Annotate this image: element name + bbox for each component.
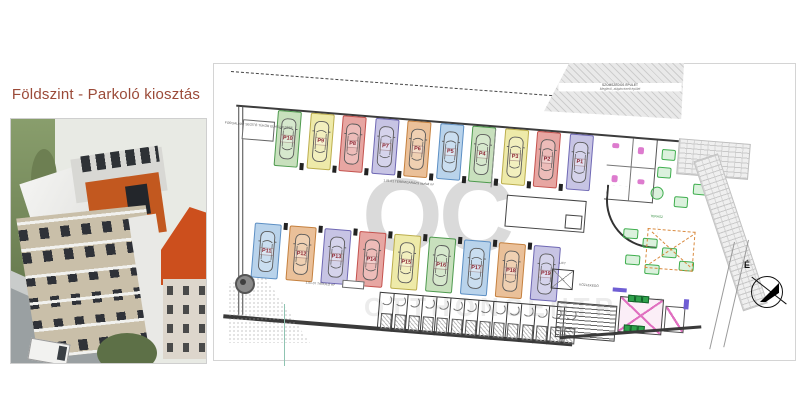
- parking-row-top: P10P9P8P7P6P5P4P3P2P1: [274, 110, 607, 192]
- page-title: Földszint - Parkoló kiosztás: [0, 86, 212, 103]
- stall-label: P7: [379, 142, 391, 151]
- floor-plan-sheet: OC OTTHONCENTRUM SZOMSZÉDOS ÉPÜLETMeglév…: [213, 63, 796, 361]
- pillar: [318, 226, 323, 233]
- pillar: [332, 166, 337, 173]
- parking-stall-p13: P13: [320, 228, 351, 285]
- parking-stall-p8: P8: [338, 115, 366, 173]
- parking-stall-p6: P6: [403, 120, 431, 178]
- pillar: [559, 184, 564, 191]
- pillar: [494, 179, 499, 186]
- pillar: [388, 231, 393, 238]
- pillar: [526, 181, 531, 188]
- stall-label: P1: [573, 158, 585, 167]
- pergola-dashed-outline: [645, 228, 696, 272]
- elevator-shaft: [551, 268, 575, 290]
- stall-label: P3: [509, 153, 521, 162]
- garden-table-icon: [661, 149, 676, 161]
- parking-stall-p17: P17: [460, 239, 491, 296]
- stall-label: P18: [503, 266, 518, 275]
- stall-label: P12: [294, 249, 309, 258]
- door-marker: [683, 299, 689, 309]
- aisle-island: [504, 195, 586, 233]
- parking-stall-p16: P16: [425, 237, 456, 294]
- building-render-image: [10, 118, 207, 364]
- stall-label: P2: [541, 155, 553, 164]
- stall-label: P5: [444, 148, 456, 157]
- parking-stall-p10: P10: [274, 110, 302, 168]
- traffic-mirror-note: FORGALMAT SEGÍTŐ TÜKÖR ELHELYEZÉSE: [242, 119, 276, 142]
- property-boundary-dashed-line: [231, 71, 552, 96]
- garden-table-icon: [674, 196, 689, 208]
- parking-stall-p11: P11: [251, 222, 282, 279]
- parking-stall-p3: P3: [500, 128, 528, 186]
- stall-label: P14: [363, 255, 378, 264]
- pillar: [300, 163, 305, 170]
- stall-label: P17: [468, 263, 483, 272]
- north-label: É: [744, 260, 750, 270]
- pillar: [283, 223, 288, 230]
- pillar: [429, 173, 434, 180]
- parking-stall-p5: P5: [436, 123, 464, 181]
- toilet-icon: [611, 175, 618, 182]
- garden-bench-icon: [625, 254, 641, 265]
- parking-stall-p12: P12: [285, 225, 316, 282]
- parking-stall-p1: P1: [565, 133, 593, 191]
- pillar: [458, 237, 463, 244]
- tree-symbol: [235, 274, 255, 294]
- neighbor-facade: [163, 279, 207, 359]
- pillar: [364, 168, 369, 175]
- stall-label: P15: [398, 258, 413, 267]
- parking-stall-p2: P2: [533, 131, 561, 189]
- neighbor-building-hatch: SZOMSZÉDOS ÉPÜLETMeglévő, alápincézett é…: [544, 63, 684, 119]
- pillar: [462, 176, 467, 183]
- garden-table-icon: [657, 167, 672, 179]
- round-table-icon: [650, 186, 664, 200]
- stall-label: P10: [280, 134, 295, 143]
- scan-artifact-line: [284, 304, 285, 366]
- sink-icon: [637, 179, 644, 185]
- sink-icon: [612, 143, 619, 149]
- green-marker: [642, 296, 650, 304]
- parking-stall-p14: P14: [355, 231, 386, 288]
- parking-stall-p15: P15: [390, 234, 421, 291]
- stall-label: P11: [259, 247, 274, 256]
- parking-stall-p7: P7: [371, 118, 399, 176]
- stall-label: P9: [314, 137, 326, 146]
- parking-stall-p9: P9: [306, 113, 334, 171]
- pillar: [423, 234, 428, 241]
- stall-label: P13: [328, 252, 343, 261]
- toilet-icon: [638, 147, 645, 154]
- pillar: [353, 228, 358, 235]
- garden-bench-icon: [623, 228, 639, 239]
- neighbor-roof: [161, 207, 207, 285]
- stall-label: P4: [476, 150, 488, 159]
- pillar: [397, 171, 402, 178]
- stall-label: P8: [347, 140, 359, 149]
- screenshot-root: Földszint - Parkoló kiosztás: [0, 0, 800, 420]
- stall-label: P16: [433, 261, 448, 270]
- parking-row-middle: P11P12P13P14P15P16P17P18P19: [251, 222, 574, 302]
- parking-stall-p18: P18: [495, 242, 526, 299]
- pillar: [493, 240, 498, 247]
- stall-label: P6: [411, 145, 423, 154]
- pillar: [528, 242, 533, 249]
